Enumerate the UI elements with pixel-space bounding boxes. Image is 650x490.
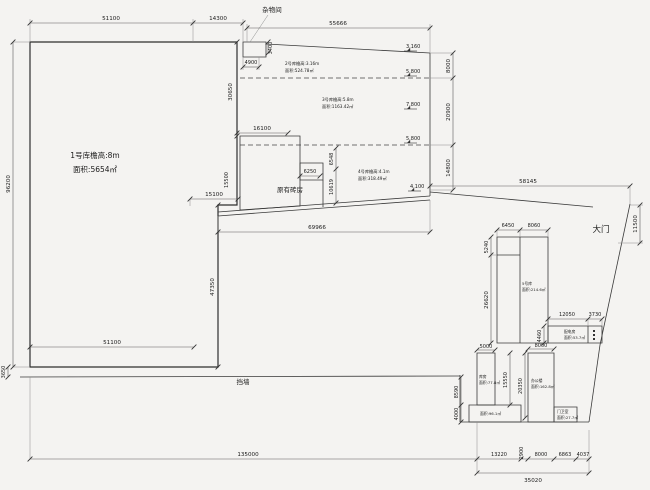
label-guard-room-area: 面积:27.7㎡: [557, 415, 578, 420]
dim-right-14800: 14800: [446, 159, 452, 177]
dim-yard-3730: 3730: [589, 312, 602, 318]
label-warehouse4-area: 面积:318.49㎡: [358, 175, 387, 182]
dim-low-8590: 8590: [454, 386, 460, 399]
dim-base-135000: 135000: [237, 452, 259, 458]
dim-base-35020: 35020: [524, 478, 542, 484]
dim-yard-6450: 6450: [502, 223, 515, 229]
dim-mid-15500: 15500: [224, 172, 230, 188]
dimension-ticks: [6, 21, 643, 476]
dashed-roof-lines: [240, 78, 430, 145]
dim-wall-30650: 30650: [228, 83, 234, 101]
dim-right-8000: 8000: [446, 58, 452, 73]
elevation-4100: 4.100: [410, 184, 424, 190]
label-store-area: 面积:77.8㎡: [479, 380, 500, 385]
dim-base-4037: 4037: [577, 452, 590, 458]
label-retaining-wall: 挡墙: [237, 377, 251, 386]
dim-mid-47350: 47350: [210, 278, 216, 296]
dim-base-51100: 51100: [103, 340, 121, 346]
label-annex-area: 面积:96.1㎡: [480, 411, 501, 416]
dim-low-8000: 8000: [535, 343, 548, 349]
label-guard-room-name: 门卫室: [557, 409, 569, 414]
dim-yard-4460: 4460: [537, 330, 543, 343]
dim-base-2900: 2900: [519, 447, 525, 460]
label-warehouse2-height: 2号库檐高:3.16m: [285, 60, 319, 67]
label-warehouse3-area: 面积:1163.42㎡: [322, 103, 354, 110]
dim-right-20900: 20900: [446, 103, 452, 121]
text-labels: 51100 14300 55666 杂物间 4900 3400 96200 36…: [1, 5, 639, 484]
dim-low-20350: 20350: [518, 378, 524, 394]
dim-low-15550: 15550: [503, 372, 509, 388]
elevation-5800-b: 5.800: [406, 136, 420, 142]
elevation-5800-a: 5.800: [406, 69, 420, 75]
dim-mid-15100: 15100: [205, 192, 223, 198]
dim-shed-3400: 3400: [268, 42, 274, 55]
elevation-7800: 7.800: [406, 102, 420, 108]
site-plan-page: 51100 14300 55666 杂物间 4900 3400 96200 36…: [0, 0, 650, 490]
dim-left-96200: 96200: [6, 175, 12, 193]
label-office-name: 办公楼: [531, 378, 543, 383]
dim-mid-10619: 10619: [329, 179, 335, 195]
label-warehouse1-height: 1号库檐高:8m: [70, 150, 119, 160]
dim-mid-6548: 6548: [329, 153, 335, 166]
elevation-3160: 3.160: [406, 44, 420, 50]
dim-low-5000: 5000: [480, 344, 493, 350]
label-store-name: 库房: [479, 374, 487, 379]
label-power-room-name: 配电房: [564, 329, 576, 334]
dim-bottom-69966: 69966: [308, 225, 326, 231]
dim-gate-11500: 11500: [633, 215, 639, 233]
dim-yard-26620: 26620: [484, 291, 490, 309]
dim-yard-5240: 5240: [484, 241, 490, 254]
dim-base-8000: 8000: [535, 452, 548, 458]
dim-left-3650: 3650: [1, 366, 7, 379]
label-warehouse1-area: 面积:5654㎡: [73, 164, 118, 174]
dim-top-55666: 55666: [329, 21, 347, 27]
label-existing-brick-house: 原有砖房: [277, 185, 303, 194]
dim-base-13220: 13220: [491, 452, 507, 458]
label-warehouse5-area: 面积:214.6㎡: [522, 287, 546, 292]
dim-mid-16100: 16100: [253, 126, 271, 132]
label-storage-room: 杂物间: [262, 5, 282, 14]
dim-low-4000: 4000: [454, 408, 460, 421]
label-office-area: 面积:162.8㎡: [531, 384, 555, 389]
dim-yard-8060: 8060: [528, 223, 541, 229]
dim-top-14300: 14300: [209, 16, 227, 22]
label-warehouse4-height: 4号库檐高:4.1m: [358, 168, 390, 175]
dim-yard-12050: 12050: [559, 312, 575, 318]
dim-base-6863: 6863: [559, 452, 572, 458]
label-warehouse2-area: 面积:524.78㎡: [285, 67, 314, 74]
label-warehouse3-height: 3号库檐高:5.8m: [322, 96, 354, 103]
dim-mid-6250: 6250: [304, 169, 317, 175]
building-outlines: [20, 15, 630, 422]
dim-gate-58145: 58145: [519, 179, 537, 185]
label-main-gate: 大门: [592, 224, 609, 235]
label-warehouse5-name: 5号库: [522, 281, 532, 286]
dim-top-51100: 51100: [102, 16, 120, 22]
label-power-room-area: 面积:53.7㎡: [564, 335, 585, 340]
dim-shed-4900: 4900: [245, 60, 258, 66]
site-plan-drawing: 51100 14300 55666 杂物间 4900 3400 96200 36…: [0, 0, 650, 490]
